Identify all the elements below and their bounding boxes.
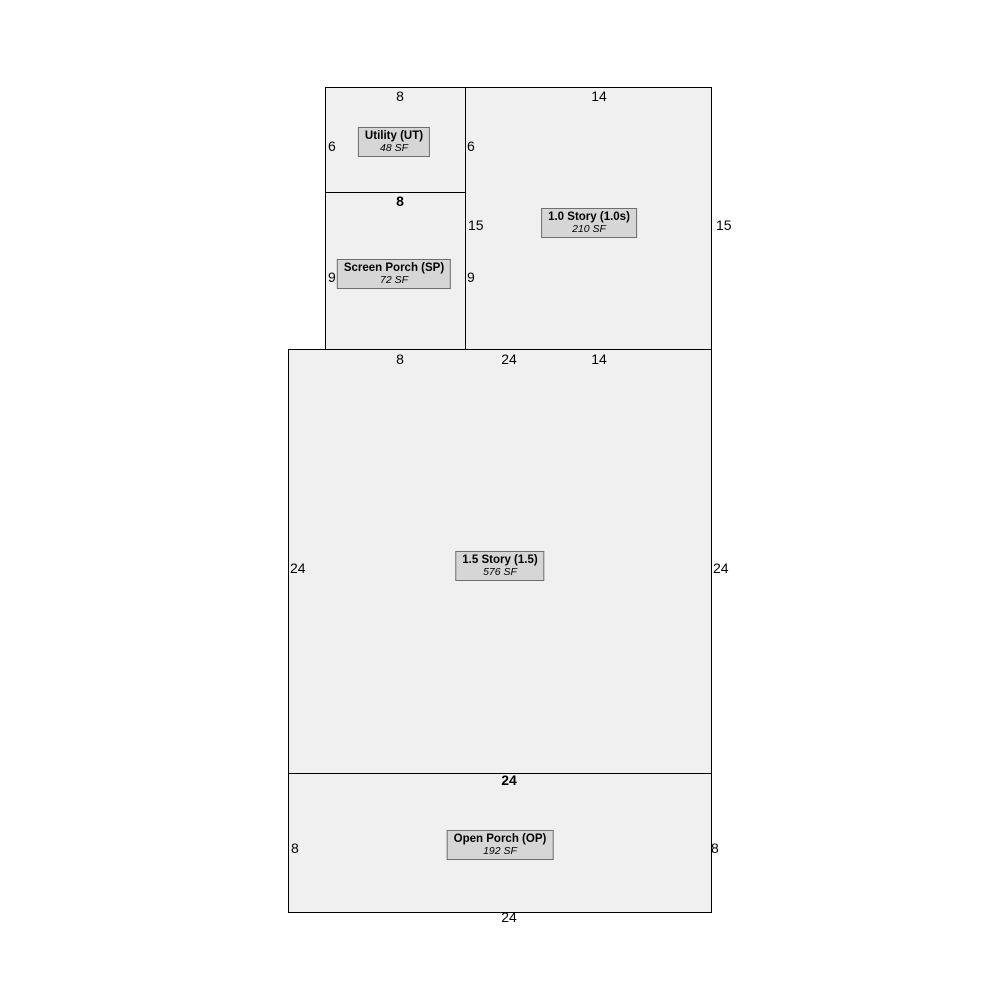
dimension-one-story-top: 14 — [591, 89, 607, 103]
floor-plan-sketch: Utility (UT) 48 SF 1.0 Story (1.0s) 210 … — [0, 0, 1000, 1000]
dimension-utility-top: 8 — [396, 89, 404, 103]
area-label-screen-porch: Screen Porch (SP) 72 SF — [337, 259, 451, 289]
dimension-screen-porch-bottom: 8 — [396, 352, 404, 366]
dimension-utility-left: 6 — [328, 139, 336, 153]
area-label-open-porch: Open Porch (OP) 192 SF — [447, 830, 554, 860]
dimension-open-porch-top: 24 — [501, 773, 517, 787]
dimension-one-story-bottom: 14 — [591, 352, 607, 366]
area-sf-one-half-story: 576 SF — [462, 567, 537, 578]
dimension-open-porch-right: 8 — [711, 841, 719, 855]
area-sf-one-story: 210 SF — [548, 224, 630, 235]
dimension-one-half-story-right: 24 — [713, 561, 729, 575]
dimension-open-porch-left: 8 — [291, 841, 299, 855]
area-label-utility: Utility (UT) 48 SF — [358, 127, 430, 157]
dimension-open-porch-bottom: 24 — [501, 910, 517, 924]
area-label-one-half-story: 1.5 Story (1.5) 576 SF — [455, 551, 544, 581]
dimension-utility-right: 6 — [467, 139, 475, 153]
area-label-one-story: 1.0 Story (1.0s) 210 SF — [541, 208, 637, 238]
dimension-screen-porch-right: 9 — [467, 270, 475, 284]
area-sf-utility: 48 SF — [365, 143, 423, 154]
dimension-utility-bottom: 8 — [396, 194, 404, 208]
dimension-one-story-left: 15 — [468, 218, 484, 232]
dimension-screen-porch-left: 9 — [328, 270, 336, 284]
dimension-one-half-story-left: 24 — [290, 561, 306, 575]
area-sf-screen-porch: 72 SF — [344, 275, 444, 286]
dimension-one-half-story-top: 24 — [501, 352, 517, 366]
area-sf-open-porch: 192 SF — [454, 846, 547, 857]
dimension-one-story-right: 15 — [716, 218, 732, 232]
